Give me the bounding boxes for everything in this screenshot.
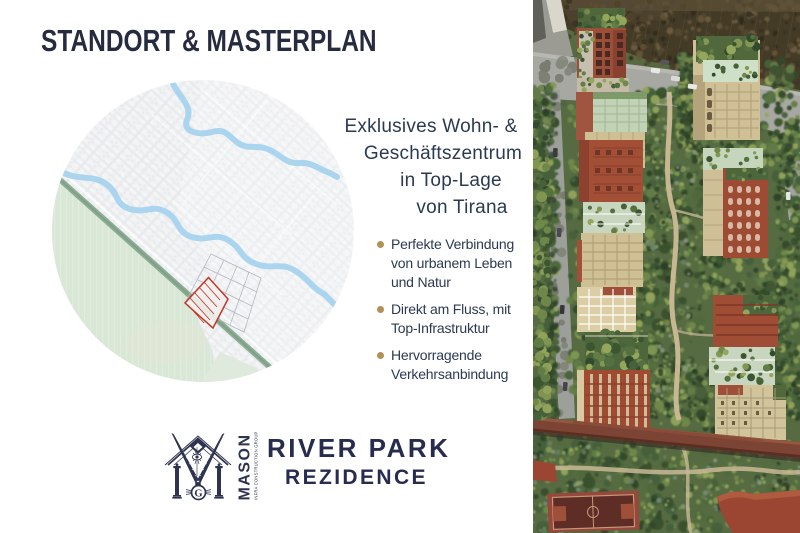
svg-text:MASON: MASON — [237, 433, 254, 500]
svg-text:INFRA CONSTRUCTION GROUP: INFRA CONSTRUCTION GROUP — [254, 432, 259, 500]
svg-text:G: G — [194, 489, 202, 500]
